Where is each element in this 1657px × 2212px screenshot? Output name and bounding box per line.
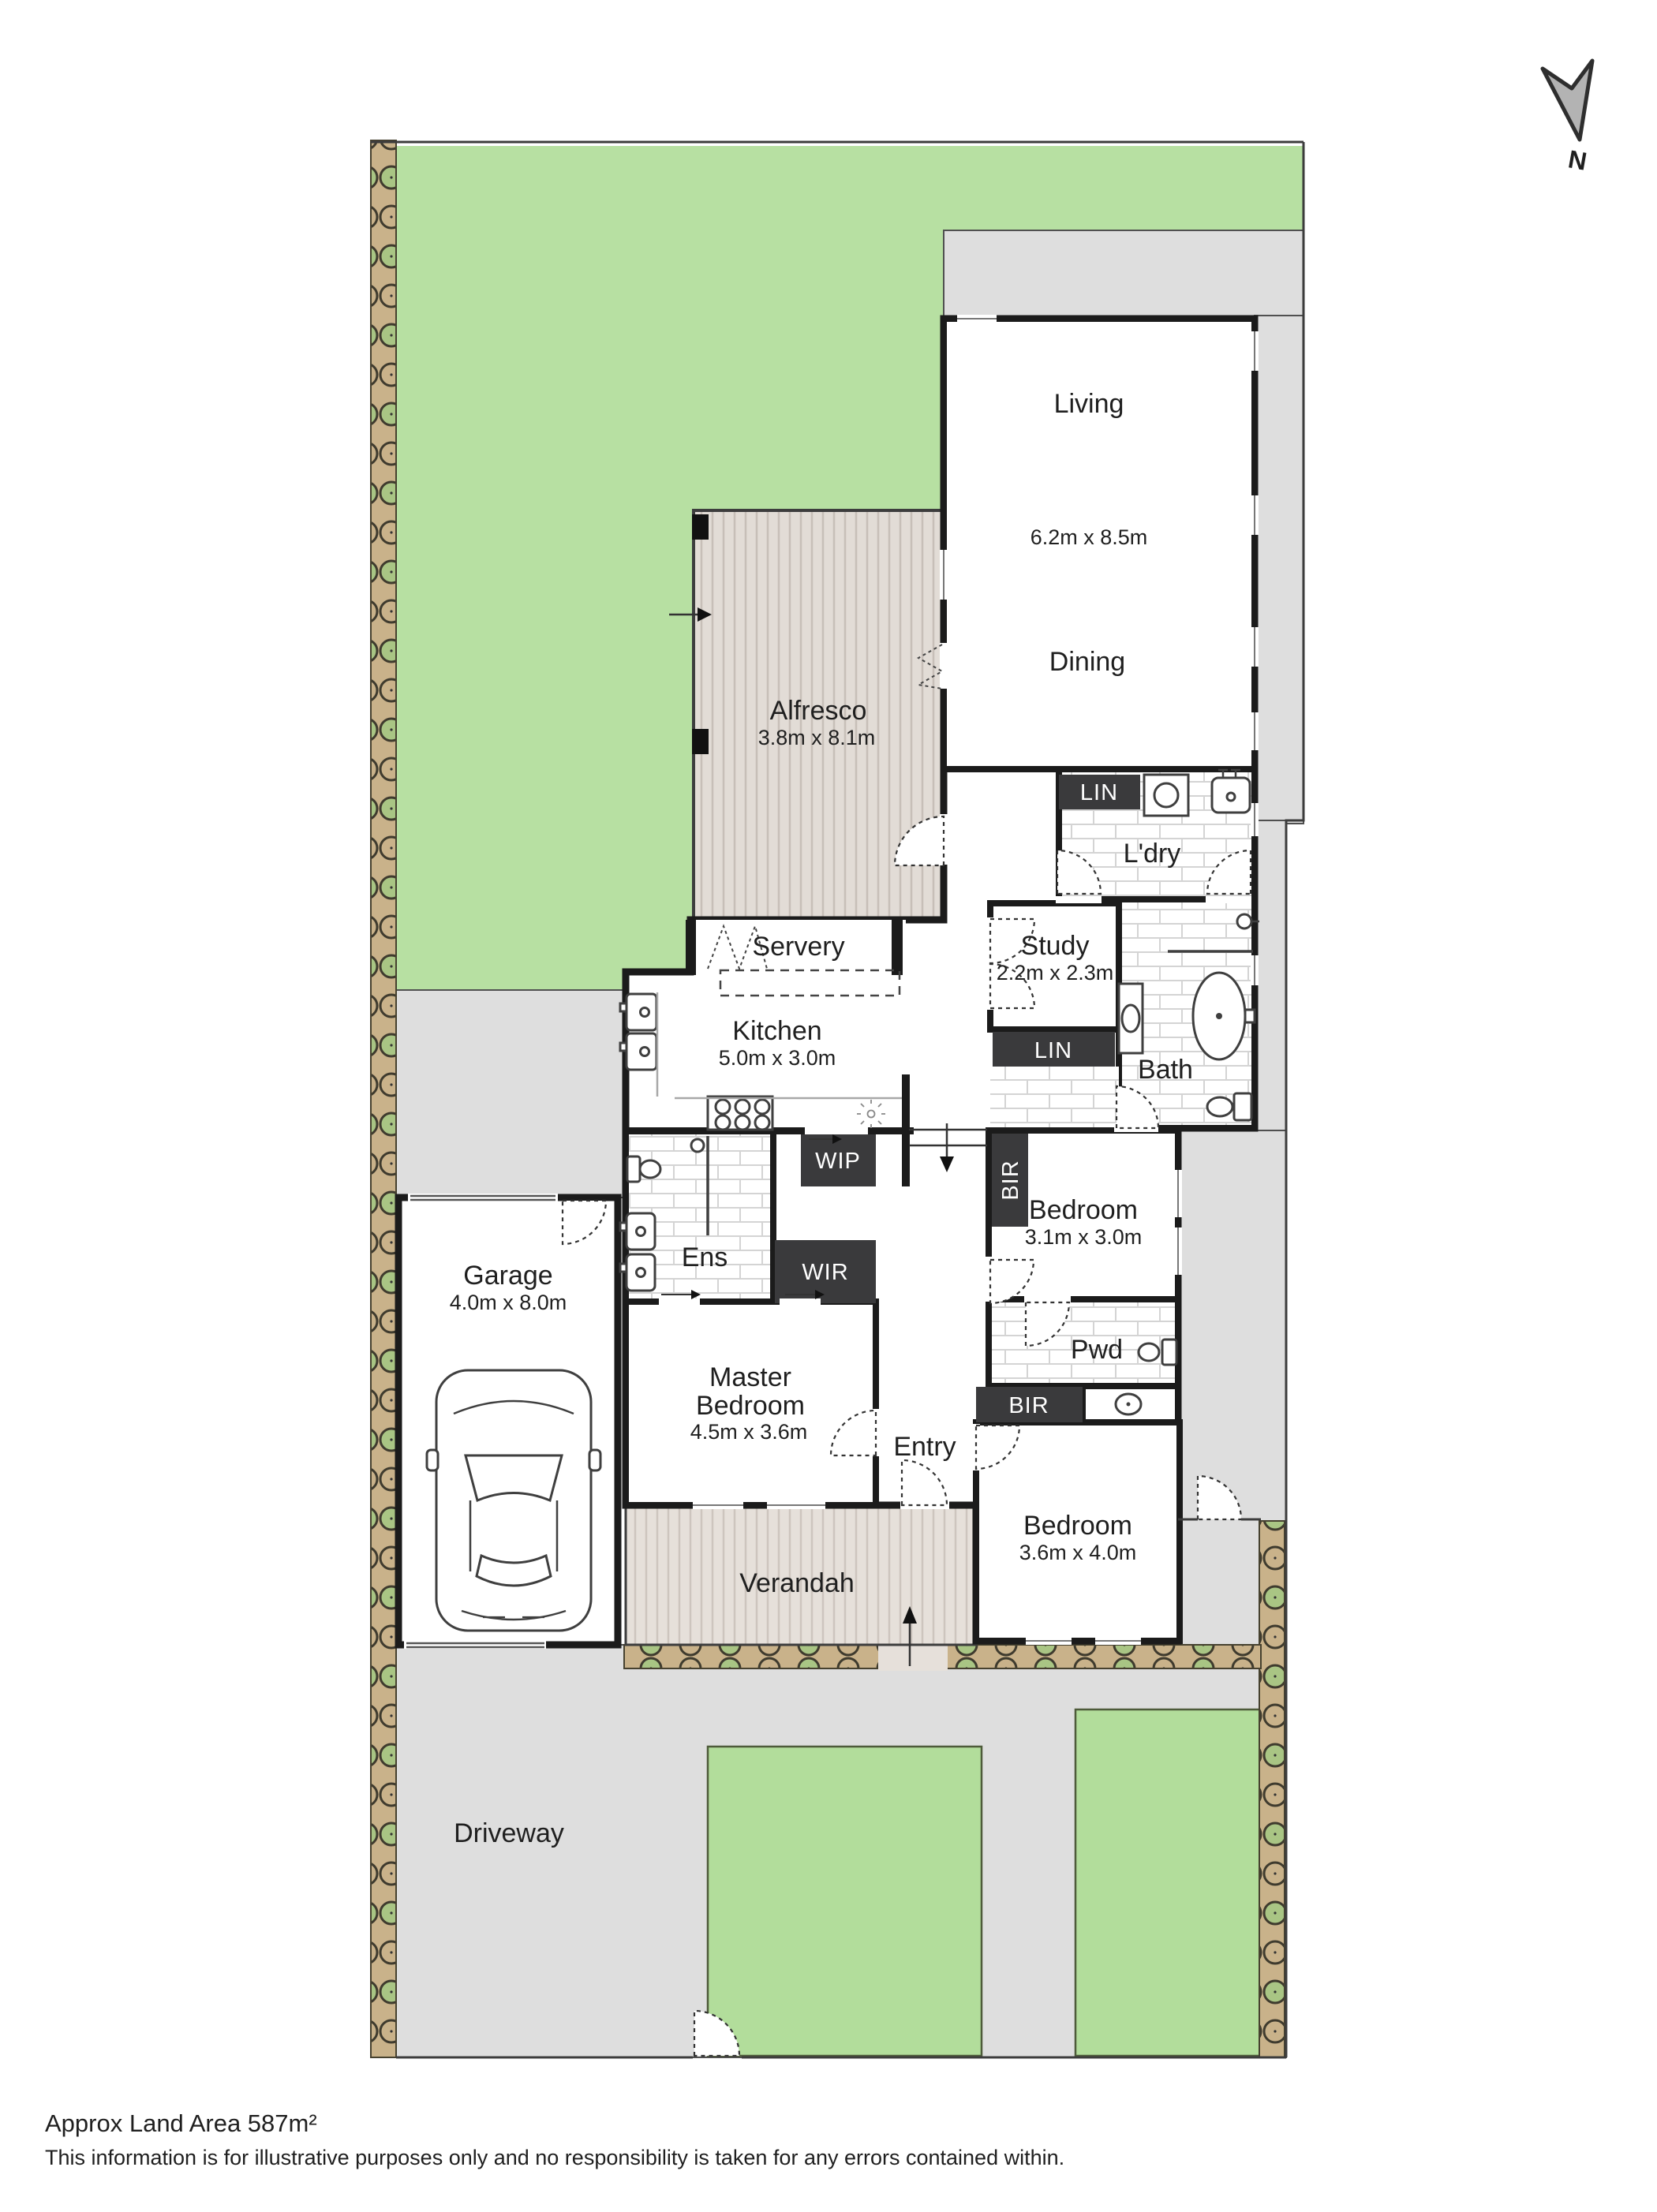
label-bir-front: BIR	[1008, 1393, 1049, 1418]
label-entry: Entry	[893, 1432, 956, 1462]
dims-alfresco: 3.8m x 8.1m	[758, 726, 876, 749]
wall-servery-east-stub	[892, 920, 903, 975]
washing-machine-icon	[1144, 775, 1188, 816]
dims-study: 2.2m x 2.3m	[997, 961, 1114, 985]
label-garage: Garage	[463, 1261, 552, 1291]
paving-top-right	[944, 230, 1304, 319]
paving-west-garage	[396, 990, 627, 1198]
garden-bed-right	[1075, 1709, 1261, 2056]
paving-east-living	[1255, 316, 1304, 824]
shower-head-bath-icon	[1237, 914, 1251, 929]
land-area-text: Approx Land Area 587m²	[45, 2109, 317, 2137]
label-wir: WIR	[802, 1260, 848, 1285]
label-ensuite: Ens	[682, 1242, 728, 1272]
shower-head-ensuite-icon	[691, 1139, 704, 1152]
dims-bedroom-front: 3.6m x 4.0m	[1019, 1541, 1137, 1564]
wall-kitchen-east	[902, 1074, 910, 1186]
label-study: Study	[1021, 931, 1090, 961]
garden-bed-middle	[708, 1747, 982, 2056]
bath-corridor-tiles	[990, 1067, 1119, 1128]
label-living: Living	[1054, 389, 1124, 419]
disclaimer-text: This information is for illustrative pur…	[45, 2146, 1064, 2169]
label-bath: Bath	[1138, 1055, 1193, 1085]
label-driveway: Driveway	[454, 1818, 564, 1848]
dims-master: 4.5m x 3.6m	[690, 1420, 808, 1444]
label-servery: Servery	[752, 932, 844, 962]
label-dining: Dining	[1049, 647, 1125, 677]
dims-garage: 4.0m x 8.0m	[450, 1291, 567, 1314]
label-wip: WIP	[815, 1149, 861, 1174]
bathtub-tap-icon	[1245, 1010, 1255, 1022]
label-powder: Pwd	[1071, 1335, 1123, 1365]
label-master-1: Master	[709, 1362, 791, 1392]
label-verandah: Verandah	[739, 1568, 855, 1598]
label-laundry: L'dry	[1124, 839, 1181, 869]
entry-walkway-gap	[878, 1642, 948, 1671]
fence-right	[1259, 1521, 1285, 2057]
label-bedroom-front: Bedroom	[1023, 1511, 1132, 1541]
north-label: N	[1566, 144, 1589, 175]
label-linen-hall: LIN	[1034, 1038, 1072, 1063]
north-indicator: N	[1543, 61, 1592, 176]
label-alfresco: Alfresco	[770, 696, 867, 726]
label-linen-laundry: LIN	[1080, 780, 1118, 805]
dims-bedroom-rear: 3.1m x 3.0m	[1025, 1225, 1143, 1249]
bath-vanity-icon	[1119, 984, 1143, 1053]
car-icon	[427, 1370, 600, 1631]
label-bedroom-rear: Bedroom	[1029, 1195, 1138, 1225]
basin-powder-icon	[1116, 1394, 1141, 1414]
wall-servery-west-stub	[686, 920, 696, 975]
floorplan-svg: Living 6.2m x 8.5m Dining Alfresco 3.8m …	[0, 0, 1657, 2212]
label-kitchen: Kitchen	[732, 1016, 821, 1046]
floorplan-page: Living 6.2m x 8.5m Dining Alfresco 3.8m …	[0, 0, 1657, 2212]
dims-living: 6.2m x 8.5m	[1030, 525, 1148, 549]
fence-left	[371, 140, 396, 2057]
cooktop-icon	[708, 1097, 772, 1130]
north-arrow-icon	[1543, 61, 1592, 140]
label-bir-rear: BIR	[998, 1160, 1023, 1200]
label-master-2: Bedroom	[696, 1391, 805, 1421]
footer: Approx Land Area 587m² This information …	[45, 2109, 1064, 2169]
dims-kitchen: 5.0m x 3.0m	[719, 1046, 836, 1070]
